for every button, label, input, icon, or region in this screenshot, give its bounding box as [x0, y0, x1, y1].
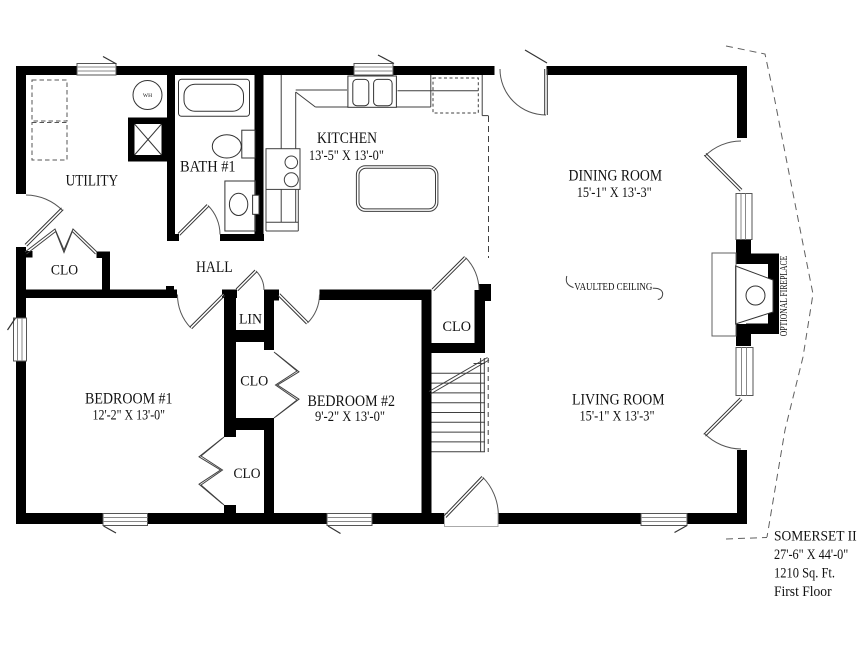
- svg-text:VAULTED CEILING: VAULTED CEILING: [574, 281, 652, 293]
- svg-text:SOMERSET II: SOMERSET II: [774, 529, 857, 545]
- svg-text:CLO: CLO: [240, 374, 268, 390]
- svg-text:BATH #1: BATH #1: [180, 159, 236, 176]
- svg-text:OPTIONAL FIREPLACE: OPTIONAL FIREPLACE: [779, 256, 790, 337]
- svg-text:LIN: LIN: [239, 312, 262, 328]
- svg-text:HALL: HALL: [196, 259, 233, 276]
- svg-text:BEDROOM #1: BEDROOM #1: [85, 391, 173, 408]
- svg-text:9'-2" X 13'-0": 9'-2" X 13'-0": [315, 409, 385, 425]
- svg-text:15'-1" X 13'-3": 15'-1" X 13'-3": [580, 409, 655, 425]
- svg-text:First Floor: First Floor: [774, 584, 832, 600]
- svg-text:LIVING ROOM: LIVING ROOM: [572, 392, 665, 409]
- svg-text:CLO: CLO: [234, 466, 261, 482]
- svg-text:UTILITY: UTILITY: [66, 173, 119, 190]
- svg-text:CLO: CLO: [51, 263, 78, 279]
- svg-text:27'-6" X 44'-0": 27'-6" X 44'-0": [774, 547, 848, 563]
- svg-text:DINING ROOM: DINING ROOM: [569, 168, 663, 185]
- svg-text:12'-2" X 13'-0": 12'-2" X 13'-0": [93, 408, 166, 424]
- svg-text:1210 Sq. Ft.: 1210 Sq. Ft.: [774, 566, 835, 582]
- svg-text:13'-5" X 13'-0": 13'-5" X 13'-0": [309, 148, 384, 164]
- svg-text:15'-1" X 13'-3": 15'-1" X 13'-3": [577, 185, 652, 201]
- svg-text:CLO: CLO: [443, 319, 472, 335]
- svg-text:BEDROOM #2: BEDROOM #2: [308, 393, 396, 410]
- svg-text:WH: WH: [143, 93, 152, 99]
- svg-text:KITCHEN: KITCHEN: [317, 130, 377, 147]
